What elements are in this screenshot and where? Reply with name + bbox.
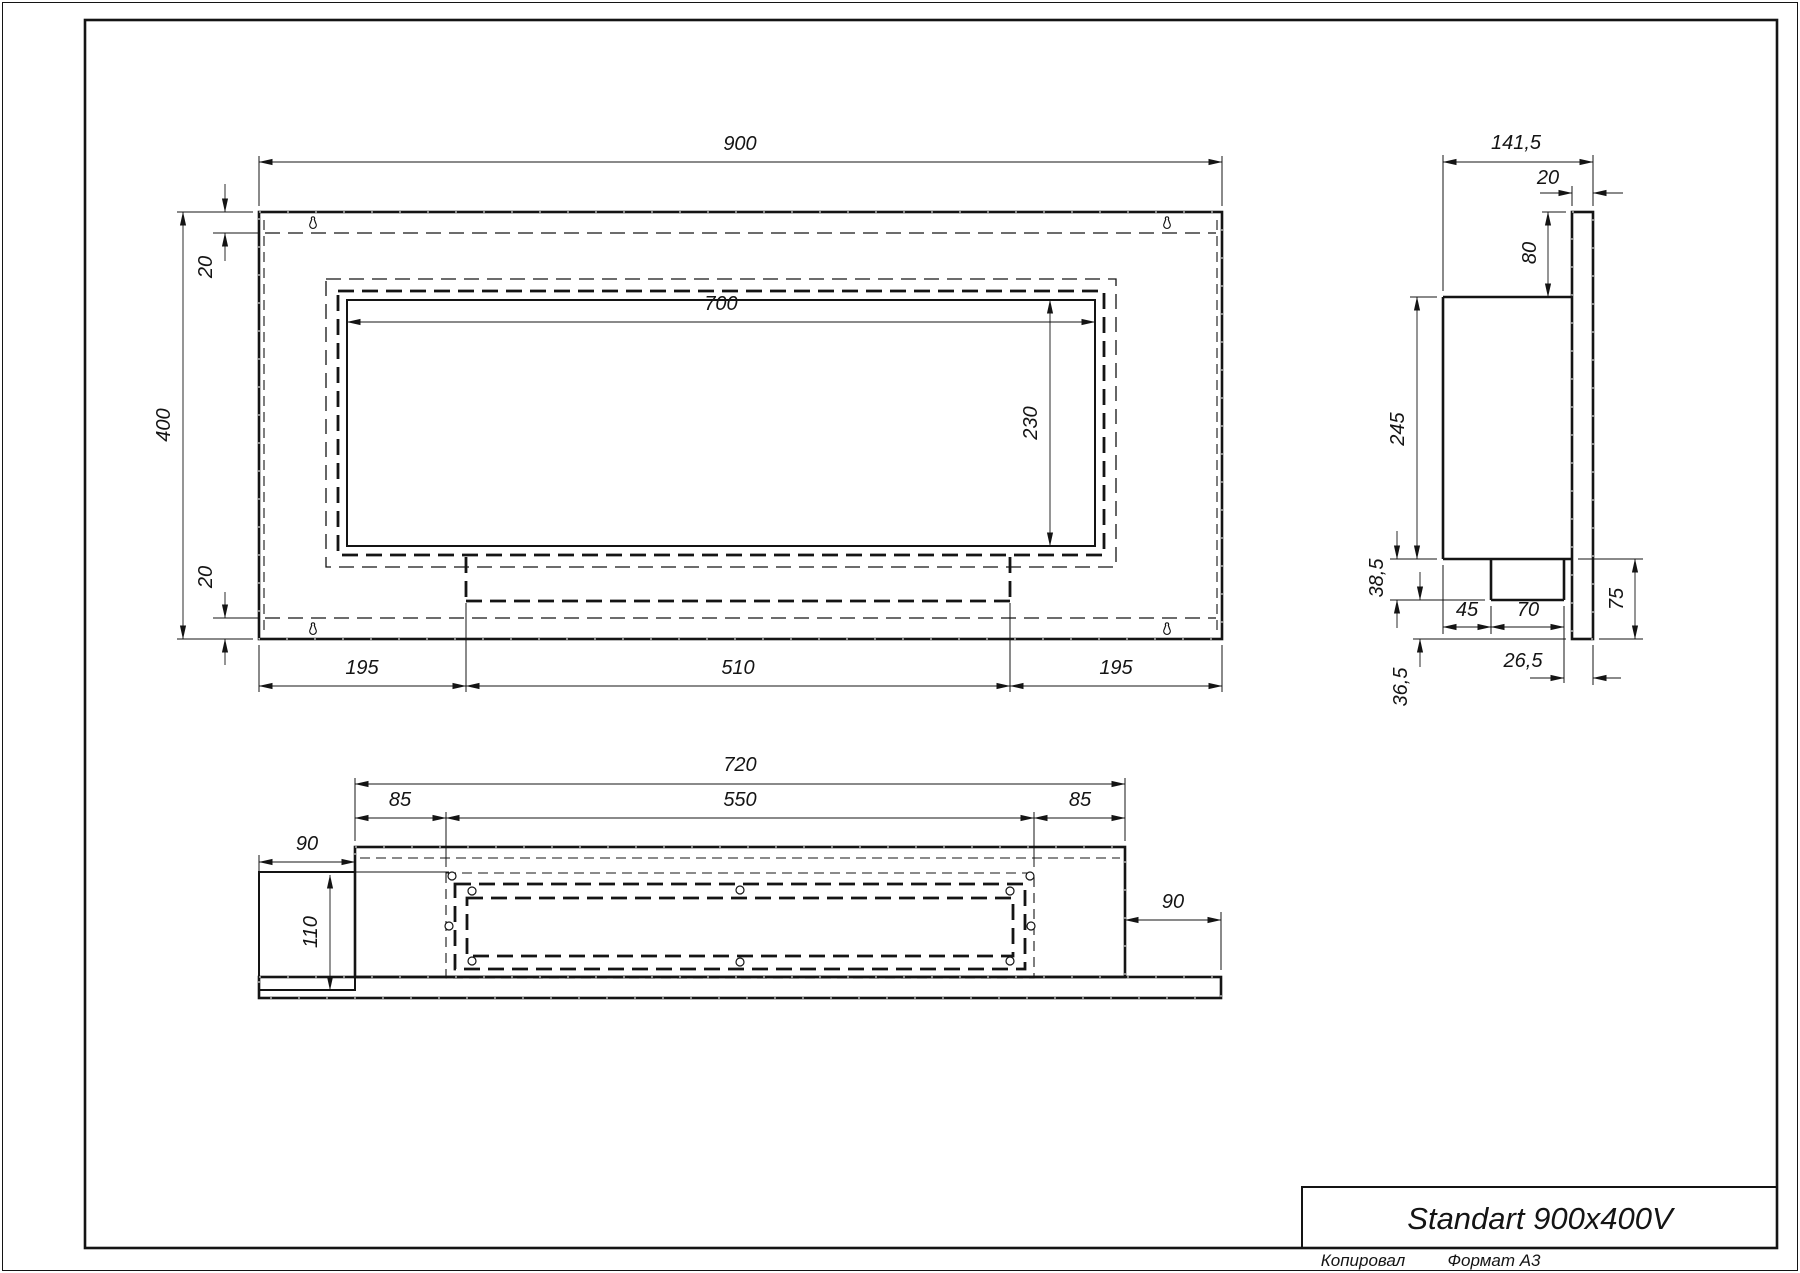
front-outline	[259, 212, 1222, 639]
dim-front-left: 195	[345, 657, 379, 679]
side-body	[1443, 297, 1572, 559]
dim-front-width: 900	[723, 133, 756, 155]
title-block: Standart 900x400V	[1302, 1187, 1777, 1248]
dim-side-body: 245	[1387, 411, 1409, 446]
dim-bottom-side-right: 90	[1162, 891, 1184, 913]
dim-front-right: 195	[1099, 657, 1133, 679]
dim-bottom-right-flange: 85	[1069, 789, 1092, 811]
dim-bottom-depth: 110	[300, 916, 322, 948]
side-view: 141,5 20 80 245 38,5 36,5 45 70 26,5	[1366, 132, 1643, 706]
bottom-view: 720 85 550 85 90 110 90	[259, 754, 1221, 998]
sheet-footer: Копировал Формат А3	[1321, 1251, 1541, 1270]
dim-front-bottom-inset: 20	[195, 566, 217, 589]
dim-bottom-side-left: 90	[296, 833, 318, 855]
dim-front-center: 510	[721, 657, 754, 679]
dim-side-depth: 141,5	[1491, 132, 1542, 154]
dim-side-drop: 75	[1606, 587, 1628, 610]
dim-opening-height: 230	[1020, 406, 1042, 440]
keyhole-icon	[310, 623, 317, 635]
dim-side-bottom-gap: 36,5	[1390, 667, 1412, 707]
footer-format-label: Формат А3	[1447, 1251, 1541, 1270]
keyhole-icon	[310, 217, 317, 229]
dim-side-top-gap: 80	[1519, 242, 1541, 264]
side-burner	[1491, 559, 1564, 600]
bottom-back-plate	[259, 977, 1221, 998]
dim-side-front: 45	[1456, 599, 1479, 621]
dim-opening-width: 700	[704, 293, 737, 315]
keyhole-icon	[1164, 623, 1171, 635]
keyhole-icon	[1164, 217, 1171, 229]
dim-front-top-inset: 20	[195, 256, 217, 279]
dim-bottom-opening: 550	[723, 789, 756, 811]
dim-side-burner-depth: 38,5	[1366, 558, 1388, 598]
dim-bottom-width: 720	[723, 754, 756, 776]
front-tray-hidden	[466, 557, 1010, 601]
drawing-sheet: 900 400 20 20 700 230 195 510 195	[0, 0, 1800, 1273]
dim-side-burner-width: 70	[1517, 599, 1539, 621]
drawing-title: Standart 900x400V	[1407, 1201, 1676, 1236]
footer-copied-label: Копировал	[1321, 1251, 1406, 1270]
dim-bottom-left-flange: 85	[389, 789, 412, 811]
dim-side-panel: 20	[1536, 167, 1559, 189]
dim-side-back: 26,5	[1503, 650, 1544, 672]
fastener-holes	[445, 872, 1035, 966]
front-opening	[347, 300, 1095, 546]
front-view: 900 400 20 20 700 230 195 510 195	[153, 133, 1222, 692]
side-back-panel	[1572, 212, 1593, 639]
dim-front-height: 400	[153, 408, 175, 441]
sheet-border	[3, 3, 1798, 1271]
